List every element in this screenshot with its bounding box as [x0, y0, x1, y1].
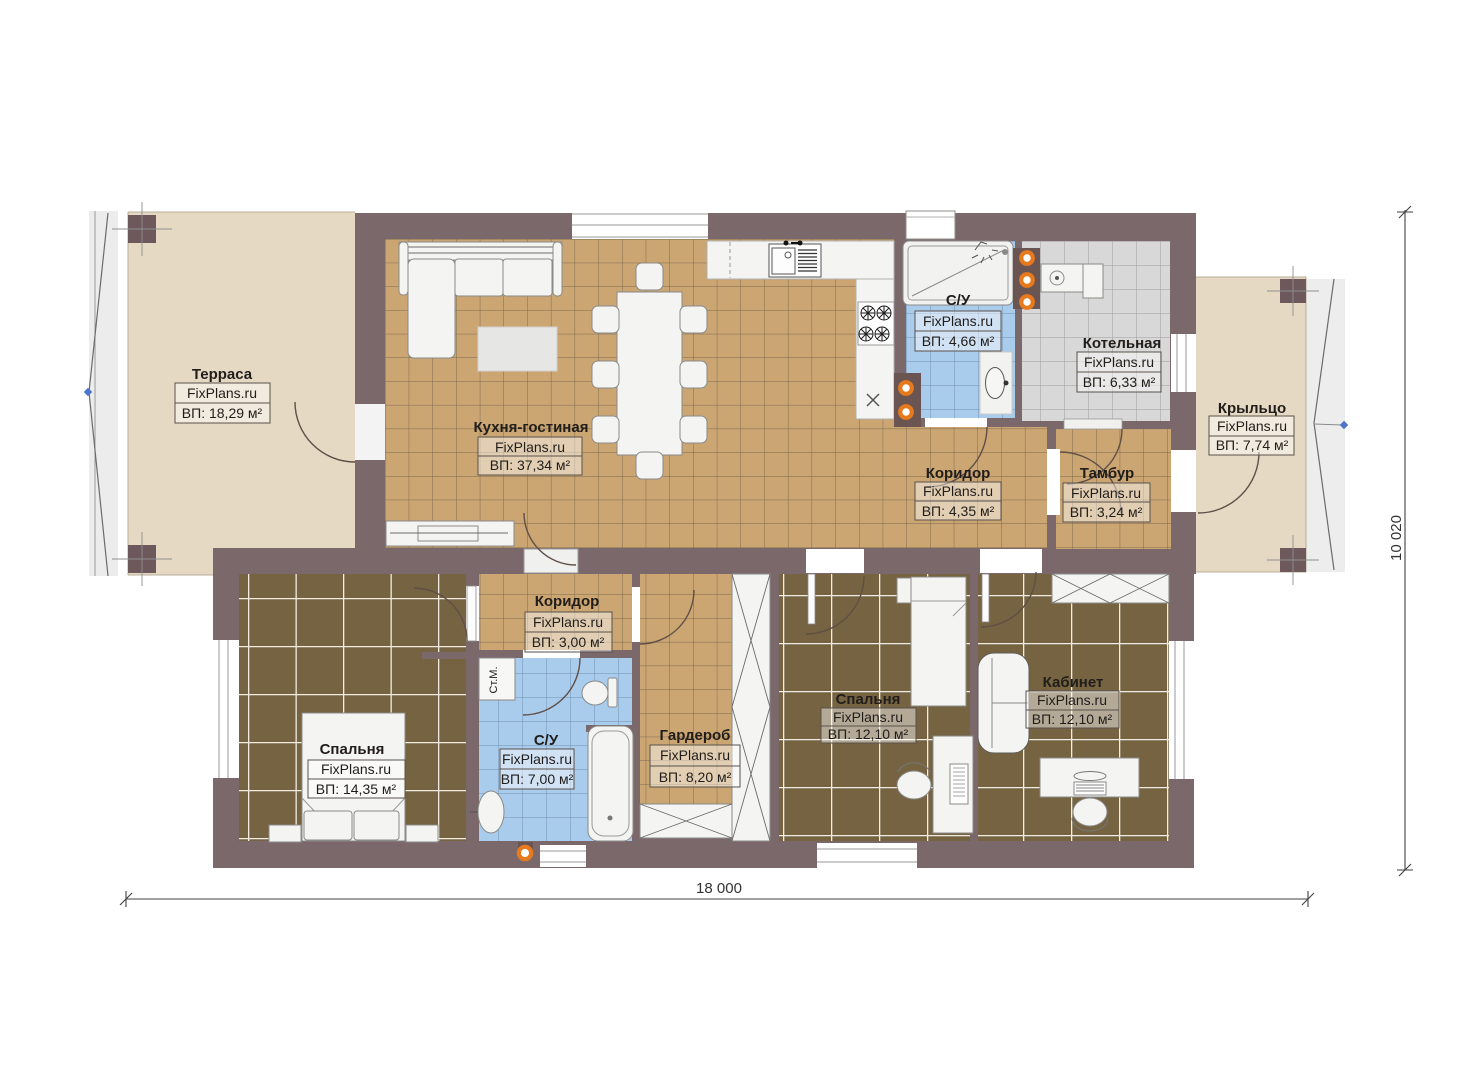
svg-text:FixPlans.ru: FixPlans.ru — [1071, 485, 1141, 501]
svg-text:ВП: 37,34 м²: ВП: 37,34 м² — [490, 457, 571, 473]
svg-text:Терраса: Терраса — [192, 366, 253, 383]
svg-text:18 000: 18 000 — [696, 880, 742, 897]
svg-text:ВП: 12,10 м²: ВП: 12,10 м² — [828, 726, 909, 742]
svg-text:ВП: 3,00 м²: ВП: 3,00 м² — [532, 634, 605, 650]
svg-text:ВП: 4,66 м²: ВП: 4,66 м² — [922, 333, 995, 349]
svg-text:FixPlans.ru: FixPlans.ru — [660, 747, 730, 763]
svg-text:Кухня-гостиная: Кухня-гостиная — [474, 419, 589, 436]
svg-text:FixPlans.ru: FixPlans.ru — [1037, 692, 1107, 708]
svg-text:Спальня: Спальня — [320, 741, 385, 758]
svg-text:ВП: 6,33 м²: ВП: 6,33 м² — [1083, 374, 1156, 390]
svg-text:FixPlans.ru: FixPlans.ru — [1217, 418, 1287, 434]
svg-text:ВП: 7,74 м²: ВП: 7,74 м² — [1216, 437, 1289, 453]
svg-text:С/У: С/У — [946, 292, 971, 309]
svg-text:ВП: 12,10 м²: ВП: 12,10 м² — [1032, 711, 1113, 727]
svg-text:ВП: 14,35 м²: ВП: 14,35 м² — [316, 781, 397, 797]
svg-text:FixPlans.ru: FixPlans.ru — [923, 313, 993, 329]
svg-text:ВП: 3,24 м²: ВП: 3,24 м² — [1070, 504, 1143, 520]
svg-text:Коридор: Коридор — [535, 593, 600, 610]
svg-text:ВП: 18,29 м²: ВП: 18,29 м² — [182, 405, 263, 421]
svg-text:Тамбур: Тамбур — [1080, 465, 1134, 482]
svg-text:Гардероб: Гардероб — [660, 727, 731, 744]
svg-text:FixPlans.ru: FixPlans.ru — [1084, 354, 1154, 370]
svg-text:Котельная: Котельная — [1083, 335, 1162, 352]
svg-text:ВП: 4,35 м²: ВП: 4,35 м² — [922, 503, 995, 519]
svg-text:С/У: С/У — [534, 732, 559, 749]
svg-text:FixPlans.ru: FixPlans.ru — [923, 483, 993, 499]
svg-text:Крыльцо: Крыльцо — [1218, 400, 1286, 417]
svg-text:FixPlans.ru: FixPlans.ru — [495, 439, 565, 455]
svg-text:10 020: 10 020 — [1388, 515, 1405, 561]
svg-text:Спальня: Спальня — [836, 691, 901, 708]
svg-text:Ст.М.: Ст.М. — [488, 666, 500, 693]
svg-text:FixPlans.ru: FixPlans.ru — [502, 751, 572, 767]
svg-text:FixPlans.ru: FixPlans.ru — [187, 385, 257, 401]
svg-text:Коридор: Коридор — [926, 465, 991, 482]
svg-text:ВП: 8,20 м²: ВП: 8,20 м² — [659, 769, 732, 785]
svg-text:FixPlans.ru: FixPlans.ru — [533, 614, 603, 630]
svg-text:Кабинет: Кабинет — [1043, 674, 1104, 691]
svg-text:ВП: 7,00 м²: ВП: 7,00 м² — [501, 771, 574, 787]
svg-text:FixPlans.ru: FixPlans.ru — [321, 761, 391, 777]
svg-text:FixPlans.ru: FixPlans.ru — [833, 709, 903, 725]
